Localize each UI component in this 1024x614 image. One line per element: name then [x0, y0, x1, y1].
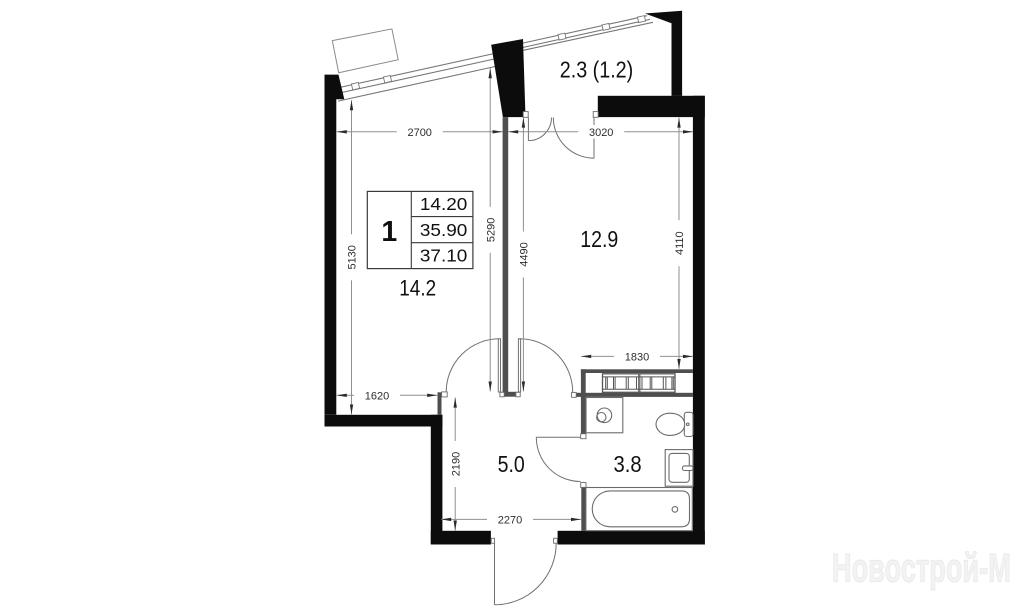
svg-text:35.90: 35.90 — [420, 221, 467, 240]
svg-text:3020: 3020 — [589, 127, 613, 139]
svg-text:4490: 4490 — [519, 242, 531, 266]
svg-text:5.0: 5.0 — [498, 451, 525, 477]
svg-text:5290: 5290 — [485, 218, 497, 242]
svg-text:1830: 1830 — [625, 352, 649, 364]
svg-text:2270: 2270 — [498, 515, 522, 527]
svg-text:14.2: 14.2 — [399, 276, 436, 301]
svg-text:12.9: 12.9 — [580, 226, 618, 252]
svg-text:2700: 2700 — [407, 127, 431, 139]
svg-text:3.8: 3.8 — [614, 451, 642, 478]
svg-text:37.10: 37.10 — [420, 246, 467, 265]
svg-text:14.20: 14.20 — [420, 195, 467, 214]
svg-text:2.3 (1.2): 2.3 (1.2) — [560, 56, 633, 83]
svg-text:4110: 4110 — [674, 231, 686, 255]
svg-text:1: 1 — [381, 216, 397, 248]
svg-text:1620: 1620 — [365, 390, 389, 402]
svg-text:5130: 5130 — [347, 245, 359, 269]
svg-text:2190: 2190 — [450, 452, 462, 476]
svg-text:Новострой-М: Новострой-М — [832, 546, 1011, 590]
